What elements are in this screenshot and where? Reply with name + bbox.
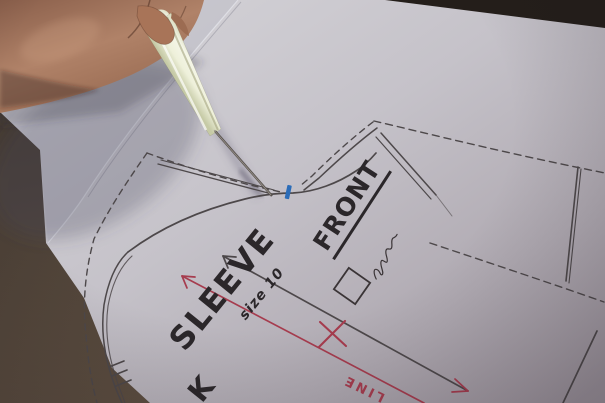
hand-and-tool-layer <box>0 0 605 403</box>
photo-scene: SLEEVE size 10 FRONT K LINE <box>0 0 605 403</box>
